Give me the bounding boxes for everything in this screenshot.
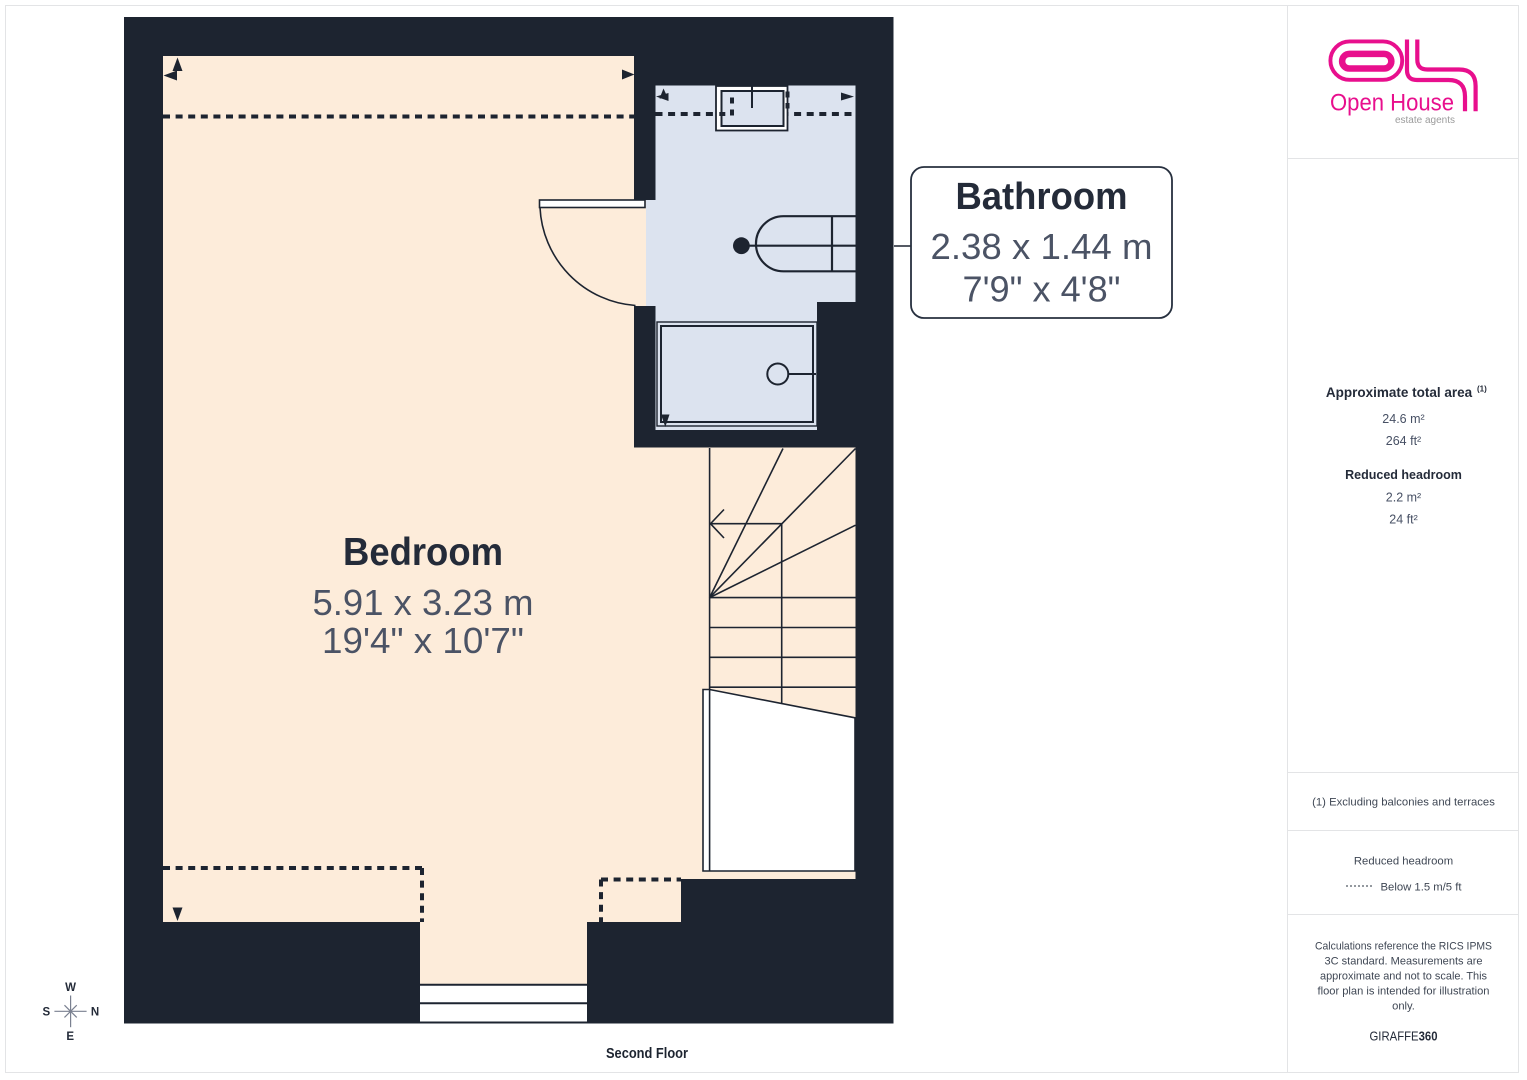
svg-text:Open House: Open House bbox=[1330, 90, 1454, 117]
svg-text:S: S bbox=[42, 1006, 50, 1018]
svg-text:only.: only. bbox=[1392, 1001, 1415, 1013]
svg-text:Reduced headroom: Reduced headroom bbox=[1345, 468, 1462, 482]
svg-text:W: W bbox=[65, 982, 76, 994]
svg-text:19'4" x 10'7": 19'4" x 10'7" bbox=[322, 620, 524, 661]
svg-text:3C standard. Measurements are: 3C standard. Measurements are bbox=[1325, 956, 1483, 968]
svg-text:2.38 x 1.44 m: 2.38 x 1.44 m bbox=[931, 226, 1153, 267]
svg-text:264 ft²: 264 ft² bbox=[1386, 434, 1421, 448]
svg-text:floor plan is intended for ill: floor plan is intended for illustration bbox=[1318, 986, 1490, 998]
svg-text:N: N bbox=[91, 1006, 99, 1018]
svg-text:Reduced headroom: Reduced headroom bbox=[1354, 856, 1453, 868]
svg-text:E: E bbox=[66, 1031, 74, 1043]
svg-text:24.6 m²: 24.6 m² bbox=[1382, 412, 1424, 426]
svg-text:7'9" x 4'8": 7'9" x 4'8" bbox=[963, 269, 1121, 310]
svg-text:Second Floor: Second Floor bbox=[606, 1045, 688, 1062]
svg-text:approximate and not to scale.: approximate and not to scale. This bbox=[1320, 971, 1487, 983]
svg-text:(1): (1) bbox=[1477, 385, 1487, 394]
svg-text:Below 1.5 m/5 ft: Below 1.5 m/5 ft bbox=[1381, 882, 1463, 894]
svg-text:24 ft²: 24 ft² bbox=[1389, 513, 1418, 527]
svg-text:Calculations reference the RIC: Calculations reference the RICS IPMS bbox=[1315, 941, 1492, 953]
svg-text:2.2 m²: 2.2 m² bbox=[1386, 491, 1421, 505]
svg-text:(1) Excluding balconies and te: (1) Excluding balconies and terraces bbox=[1312, 797, 1495, 809]
svg-text:5.91 x 3.23 m: 5.91 x 3.23 m bbox=[313, 582, 534, 623]
svg-text:estate agents: estate agents bbox=[1395, 115, 1455, 126]
svg-text:Bathroom: Bathroom bbox=[956, 176, 1128, 218]
svg-text:Approximate total area: Approximate total area bbox=[1326, 385, 1473, 400]
svg-text:GIRAFFE360: GIRAFFE360 bbox=[1370, 1030, 1438, 1044]
svg-text:Bedroom: Bedroom bbox=[343, 531, 503, 574]
